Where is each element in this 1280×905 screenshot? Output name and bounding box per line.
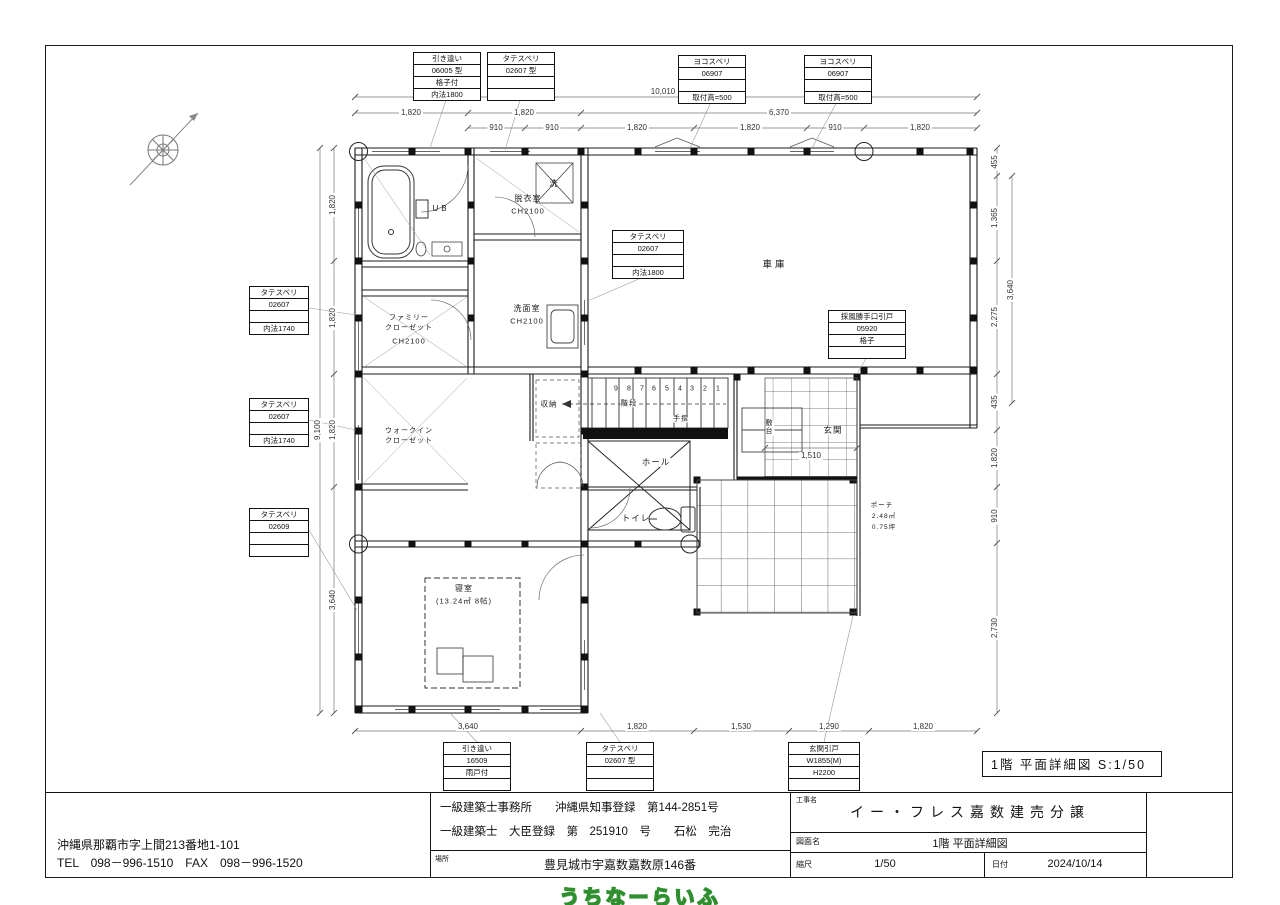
room-label-toilet: トイレ bbox=[622, 514, 651, 523]
porch-label: ポーチ bbox=[871, 503, 894, 510]
dim: 1,820 bbox=[738, 124, 762, 132]
blueprint-page: 引き違い 06005 型 格子付 内法1800 タテスベリ 02607 型 ヨコ… bbox=[0, 0, 1280, 905]
room-label-datsui: 脱衣室 bbox=[515, 195, 542, 203]
room-label-ub: UB bbox=[432, 205, 449, 213]
room-ch-datsui: CH2100 bbox=[511, 207, 545, 215]
dim: 455 bbox=[991, 153, 999, 170]
spec-row bbox=[587, 778, 653, 790]
dim-left-total: 9,100 bbox=[314, 418, 322, 442]
dim: 910 bbox=[487, 124, 504, 132]
spec-row bbox=[613, 254, 683, 266]
spec-box-bottom-2: タテスベリ 02607 型 bbox=[586, 742, 654, 791]
spec-row: 内法1800 bbox=[613, 266, 683, 278]
spec-row: 取付高=500 bbox=[679, 91, 745, 103]
office-address: 沖縄県那覇市字上間213番地1-101 bbox=[57, 836, 240, 853]
room-ch-senmen: CH2100 bbox=[510, 317, 544, 325]
room-label-hall: ホール bbox=[642, 458, 671, 467]
project-name: イー・フレス嘉数建売分譲 bbox=[800, 802, 1140, 822]
spec-box-top-4: ヨコスベリ 06907 取付高=500 bbox=[804, 55, 872, 104]
dim: 910 bbox=[991, 507, 999, 524]
spec-row: 06907 bbox=[679, 67, 745, 79]
dim: 1,820 bbox=[329, 193, 337, 217]
spec-box-top-1: 引き違い 06005 型 格子付 内法1800 bbox=[413, 52, 481, 101]
spec-row bbox=[679, 79, 745, 91]
north-symbol bbox=[130, 113, 198, 185]
dim-top-total: 10,010 bbox=[649, 88, 677, 96]
room-label-tesuri: 手摺 bbox=[673, 416, 689, 423]
spec-row: 取付高=500 bbox=[805, 91, 871, 103]
dim-right-outer: 3,640 bbox=[1007, 278, 1015, 302]
room-size-bedroom: (13.24㎡ 8帖) bbox=[436, 597, 492, 605]
bedroom-outline bbox=[425, 578, 520, 688]
spec-row: 採風勝手口引戸 bbox=[829, 311, 905, 322]
spec-row: 02607 bbox=[250, 410, 308, 422]
spec-row: 格子 bbox=[829, 334, 905, 346]
spec-row: 引き違い bbox=[414, 53, 480, 64]
spec-row: 内法1740 bbox=[250, 322, 308, 334]
spec-row: 02609 bbox=[250, 520, 308, 532]
titleblock-rule bbox=[430, 850, 790, 851]
spec-row: タテスベリ bbox=[250, 287, 308, 298]
spec-box-top-2: タテスベリ 02607 型 bbox=[487, 52, 555, 101]
room-label-wic-2: クローゼット bbox=[385, 438, 433, 445]
spec-box-left-1: タテスベリ 02607 内法1740 bbox=[249, 286, 309, 335]
dim: 1,820 bbox=[991, 446, 999, 470]
spec-row: タテスベリ bbox=[613, 231, 683, 242]
room-label-shuno: 収納 bbox=[541, 400, 558, 408]
spec-row: タテスベリ bbox=[587, 743, 653, 754]
spec-box-mid-1: タテスベリ 02607 内法1800 bbox=[612, 230, 684, 279]
date-value: 2024/10/14 bbox=[1020, 858, 1130, 870]
titleblock-top-rule bbox=[45, 792, 1233, 793]
spec-row bbox=[250, 310, 308, 322]
vanity bbox=[547, 305, 578, 348]
dim: 1,290 bbox=[817, 723, 841, 731]
spec-row: 格子付 bbox=[414, 76, 480, 88]
license-line-2: 一級建築士 大臣登録 第 251910 号 石松 完治 bbox=[440, 823, 731, 839]
spec-box-left-3: タテスベリ 02609 bbox=[249, 508, 309, 557]
dim: 2,275 bbox=[991, 305, 999, 329]
site-watermark: うちなーらいふ bbox=[560, 881, 721, 905]
drawing-title-box: 1階 平面詳細図 S:1/50 bbox=[982, 751, 1162, 777]
room-label-bedroom: 寝室 bbox=[455, 585, 473, 593]
spec-row: ヨコスベリ bbox=[805, 56, 871, 67]
spec-row: 内法1800 bbox=[414, 88, 480, 100]
room-label-genkan: 玄関 bbox=[823, 426, 842, 435]
titleblock-divider bbox=[1146, 792, 1147, 878]
license-line-1: 一級建築士事務所 沖縄県知事登録 第144-2851号 bbox=[440, 799, 719, 815]
dim: 1,365 bbox=[991, 206, 999, 230]
location-label: 場所 bbox=[435, 854, 449, 864]
spec-row: 内法1740 bbox=[250, 434, 308, 446]
spec-row: タテスベリ bbox=[488, 53, 554, 64]
titleblock-rule bbox=[790, 852, 1146, 853]
dim: 3,640 bbox=[329, 588, 337, 612]
spec-row: タテスベリ bbox=[250, 509, 308, 520]
stair-number: 6 bbox=[652, 386, 656, 393]
sheet-name: 1階 平面詳細図 bbox=[800, 835, 1140, 851]
dimension-lines bbox=[320, 97, 1012, 731]
spec-row bbox=[250, 544, 308, 556]
washer-label: 洗 bbox=[550, 180, 559, 188]
dim: 1,820 bbox=[399, 109, 423, 117]
spec-row: 16509 bbox=[444, 754, 510, 766]
room-label-shikidai: 敷台 bbox=[766, 420, 775, 436]
scale-value: 1/50 bbox=[850, 858, 920, 870]
stair-number: 5 bbox=[665, 386, 669, 393]
spec-row bbox=[789, 778, 859, 790]
spec-row bbox=[250, 532, 308, 544]
dim: 1,820 bbox=[625, 723, 649, 731]
dim: 1,820 bbox=[908, 124, 932, 132]
site-location: 豊見城市宇嘉数嘉数原146番 bbox=[480, 856, 760, 873]
spec-row: 06907 bbox=[805, 67, 871, 79]
office-phone: TEL 098－996-1510 FAX 098－996-1520 bbox=[57, 854, 303, 871]
dim: 910 bbox=[543, 124, 560, 132]
spec-row: 02607 型 bbox=[587, 754, 653, 766]
stair-number: 9 bbox=[614, 386, 618, 393]
dim: 6,370 bbox=[767, 109, 791, 117]
titleblock-divider bbox=[790, 792, 791, 878]
spec-row bbox=[488, 76, 554, 88]
room-label-kaidan: 階段 bbox=[621, 399, 638, 407]
spec-row bbox=[805, 79, 871, 91]
spec-row: 02607 bbox=[250, 298, 308, 310]
titleblock-divider bbox=[430, 792, 431, 878]
dim: 1,820 bbox=[625, 124, 649, 132]
stair-number: 2 bbox=[703, 386, 707, 393]
spec-row: 06005 型 bbox=[414, 64, 480, 76]
dim: 435 bbox=[991, 393, 999, 410]
titleblock-rule bbox=[790, 832, 1146, 833]
dim: 1,820 bbox=[329, 418, 337, 442]
dim: 1,820 bbox=[911, 723, 935, 731]
bathtub bbox=[368, 166, 428, 258]
room-label-wic: ウォークイン bbox=[385, 428, 433, 435]
room-ch-family-closet: CH2100 bbox=[392, 337, 426, 345]
porch-area: 2.48㎡ bbox=[872, 514, 896, 521]
spec-box-bottom-3: 玄関引戸 W1855(M) H2200 bbox=[788, 742, 860, 791]
porch-tiles bbox=[697, 480, 857, 613]
room-label-family-closet: ファミリー bbox=[389, 315, 429, 322]
stair-number: 8 bbox=[627, 386, 631, 393]
spec-row bbox=[587, 766, 653, 778]
titleblock-rule bbox=[984, 852, 985, 878]
stair-number: 7 bbox=[640, 386, 644, 393]
dim: 1,530 bbox=[729, 723, 753, 731]
stair-number: 3 bbox=[690, 386, 694, 393]
spec-row: H2200 bbox=[789, 766, 859, 778]
genkan-tiles bbox=[765, 378, 857, 480]
spec-row: 引き違い bbox=[444, 743, 510, 754]
porch-tsubo: 0.75坪 bbox=[872, 525, 896, 532]
date-label: 日付 bbox=[992, 859, 1008, 870]
scale-label: 縮尺 bbox=[796, 859, 812, 870]
stair-number: 1 bbox=[716, 386, 720, 393]
spec-row: 雨戸付 bbox=[444, 766, 510, 778]
spec-box-mid-2: 採風勝手口引戸 05920 格子 bbox=[828, 310, 906, 359]
room-label-garage: 車庫 bbox=[762, 260, 787, 270]
spec-box-bottom-1: 引き違い 16509 雨戸付 bbox=[443, 742, 511, 791]
stair-number: 4 bbox=[678, 386, 682, 393]
room-label-senmen: 洗面室 bbox=[514, 305, 541, 313]
spec-row: タテスベリ bbox=[250, 399, 308, 410]
spec-row: 02607 型 bbox=[488, 64, 554, 76]
dim: 2,730 bbox=[991, 616, 999, 640]
dim: 1,820 bbox=[329, 306, 337, 330]
dim: 1,820 bbox=[512, 109, 536, 117]
spec-row: ヨコスベリ bbox=[679, 56, 745, 67]
spec-row: 02607 bbox=[613, 242, 683, 254]
dim: 910 bbox=[826, 124, 843, 132]
spec-row: 玄関引戸 bbox=[789, 743, 859, 754]
spec-row: W1855(M) bbox=[789, 754, 859, 766]
room-label-family-closet-2: クローゼット bbox=[385, 325, 433, 332]
spec-row bbox=[488, 88, 554, 100]
spec-box-left-2: タテスベリ 02607 内法1740 bbox=[249, 398, 309, 447]
spec-box-top-3: ヨコスベリ 06907 取付高=500 bbox=[678, 55, 746, 104]
spec-row bbox=[829, 346, 905, 358]
spec-row bbox=[444, 778, 510, 790]
dim-genkan: 1,510 bbox=[799, 452, 823, 460]
spec-row bbox=[250, 422, 308, 434]
dim: 3,640 bbox=[456, 723, 480, 731]
handrail-wall bbox=[583, 428, 728, 439]
spec-row: 05920 bbox=[829, 322, 905, 334]
